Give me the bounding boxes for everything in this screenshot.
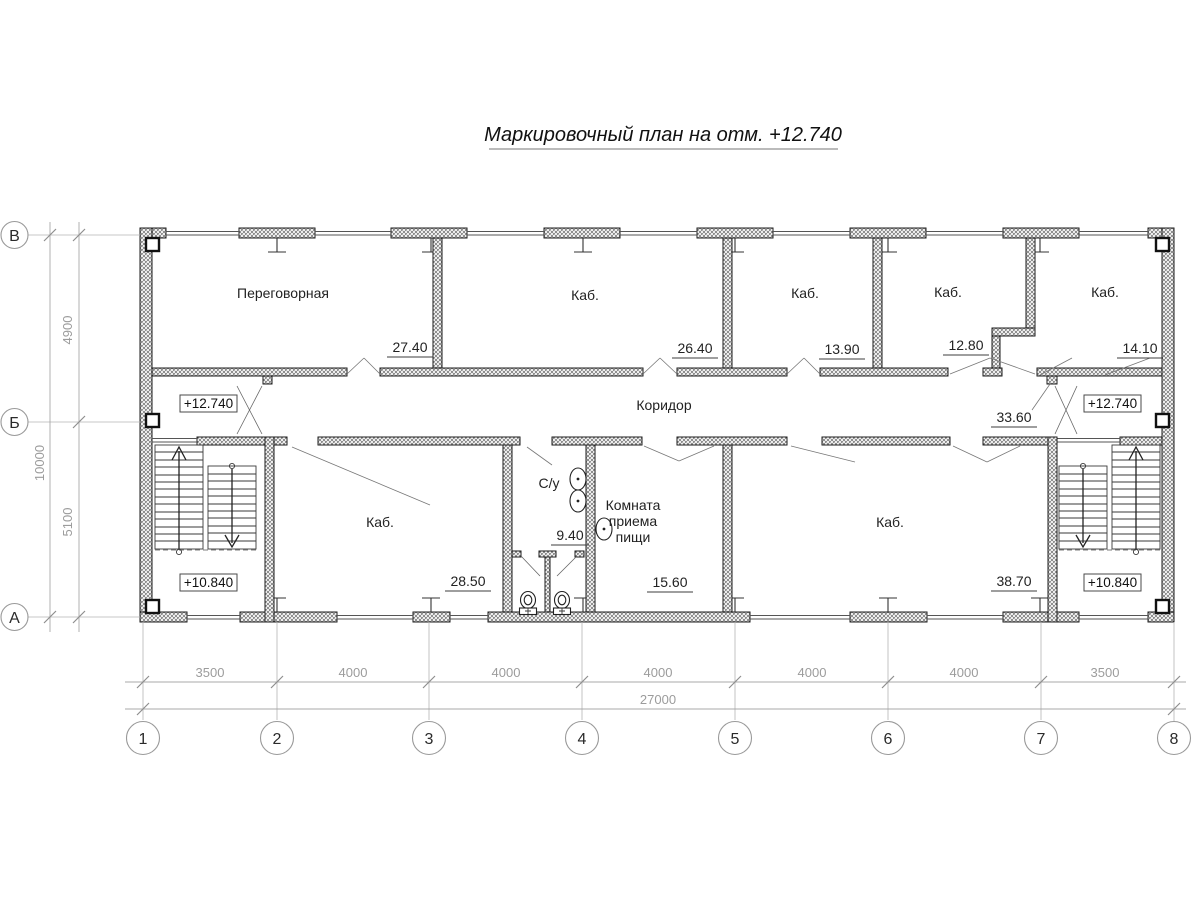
dim-total: 27000 (640, 692, 676, 707)
grid-bubble-8: 8 (1170, 731, 1179, 748)
room-name-kab-3: Каб. (934, 284, 962, 300)
right-staircase (1059, 445, 1160, 555)
room-area-kab-4: 14.10 (1122, 340, 1157, 356)
dim-left-upper: 4900 (60, 316, 75, 345)
room-name-kab-4: Каб. (1091, 284, 1119, 300)
toilet-icon (520, 592, 537, 615)
toilet-icon (554, 592, 571, 615)
left-staircase (155, 445, 256, 555)
room-area-kitchen: 15.60 (652, 574, 687, 590)
grid-bubble-3: 3 (425, 731, 434, 748)
room-area-kab-6: 38.70 (996, 573, 1031, 589)
room-name-peregovornaya: Переговорная (237, 285, 329, 301)
dim-span-6: 4000 (950, 665, 979, 680)
room-name-su: С/у (539, 475, 560, 491)
vent-t-marks (268, 238, 1049, 612)
dim-span-4: 4000 (644, 665, 673, 680)
room-area-kab-3: 12.80 (948, 337, 983, 353)
dim-span-3: 4000 (492, 665, 521, 680)
grid-bubble-a: А (9, 610, 20, 627)
grid-bubble-5: 5 (731, 731, 740, 748)
room-area-peregovornaya: 27.40 (392, 339, 427, 355)
grid-bubble-b: Б (9, 415, 20, 432)
dim-span-5: 4000 (798, 665, 827, 680)
grid-axes (28, 222, 1186, 721)
drawing-sheet: Маркировочный план на отм. +12.740 (0, 0, 1200, 900)
grid-bubble-7: 7 (1037, 731, 1046, 748)
sink-icon (570, 490, 586, 512)
room-name-corridor: Коридор (636, 397, 692, 413)
room-name-kab-2: Каб. (791, 285, 819, 301)
dim-span-7: 3500 (1091, 665, 1120, 680)
room-name-kab-1: Каб. (571, 287, 599, 303)
grid-bubble-4: 4 (578, 731, 587, 748)
grid-bubble-6: 6 (884, 731, 893, 748)
room-area-corridor: 33.60 (996, 409, 1031, 425)
room-area-kab-1: 26.40 (677, 340, 712, 356)
door-leaders (292, 358, 1150, 505)
dim-left-lower: 5100 (60, 508, 75, 537)
dim-left-total: 10000 (32, 445, 47, 481)
room-area-kab-5: 28.50 (450, 573, 485, 589)
room-name-kitchen-line1: Комната (606, 497, 661, 513)
elevation-right-upper: +12.740 (1088, 396, 1137, 411)
grid-bubble-v: В (9, 228, 20, 245)
floor-plan-svg: Маркировочный план на отм. +12.740 (0, 0, 1200, 900)
grid-bubble-2: 2 (273, 731, 282, 748)
room-name-kab-5: Каб. (366, 514, 394, 530)
elevation-left-lower: +10.840 (184, 575, 233, 590)
room-area-kab-2: 13.90 (824, 341, 859, 357)
dim-span-2: 4000 (339, 665, 368, 680)
elevation-right-lower: +10.840 (1088, 575, 1137, 590)
room-name-kab-6: Каб. (876, 514, 904, 530)
room-name-kitchen-line2: приема (609, 513, 658, 529)
grid-bubble-1: 1 (139, 731, 148, 748)
elevation-left-upper: +12.740 (184, 396, 233, 411)
sink-icon (570, 468, 586, 490)
room-area-su: 9.40 (556, 527, 583, 543)
door-swings (237, 386, 1077, 576)
dim-span-1: 3500 (196, 665, 225, 680)
plan-title: Маркировочный план на отм. +12.740 (484, 124, 842, 146)
room-name-kitchen-line3: пищи (616, 529, 651, 545)
